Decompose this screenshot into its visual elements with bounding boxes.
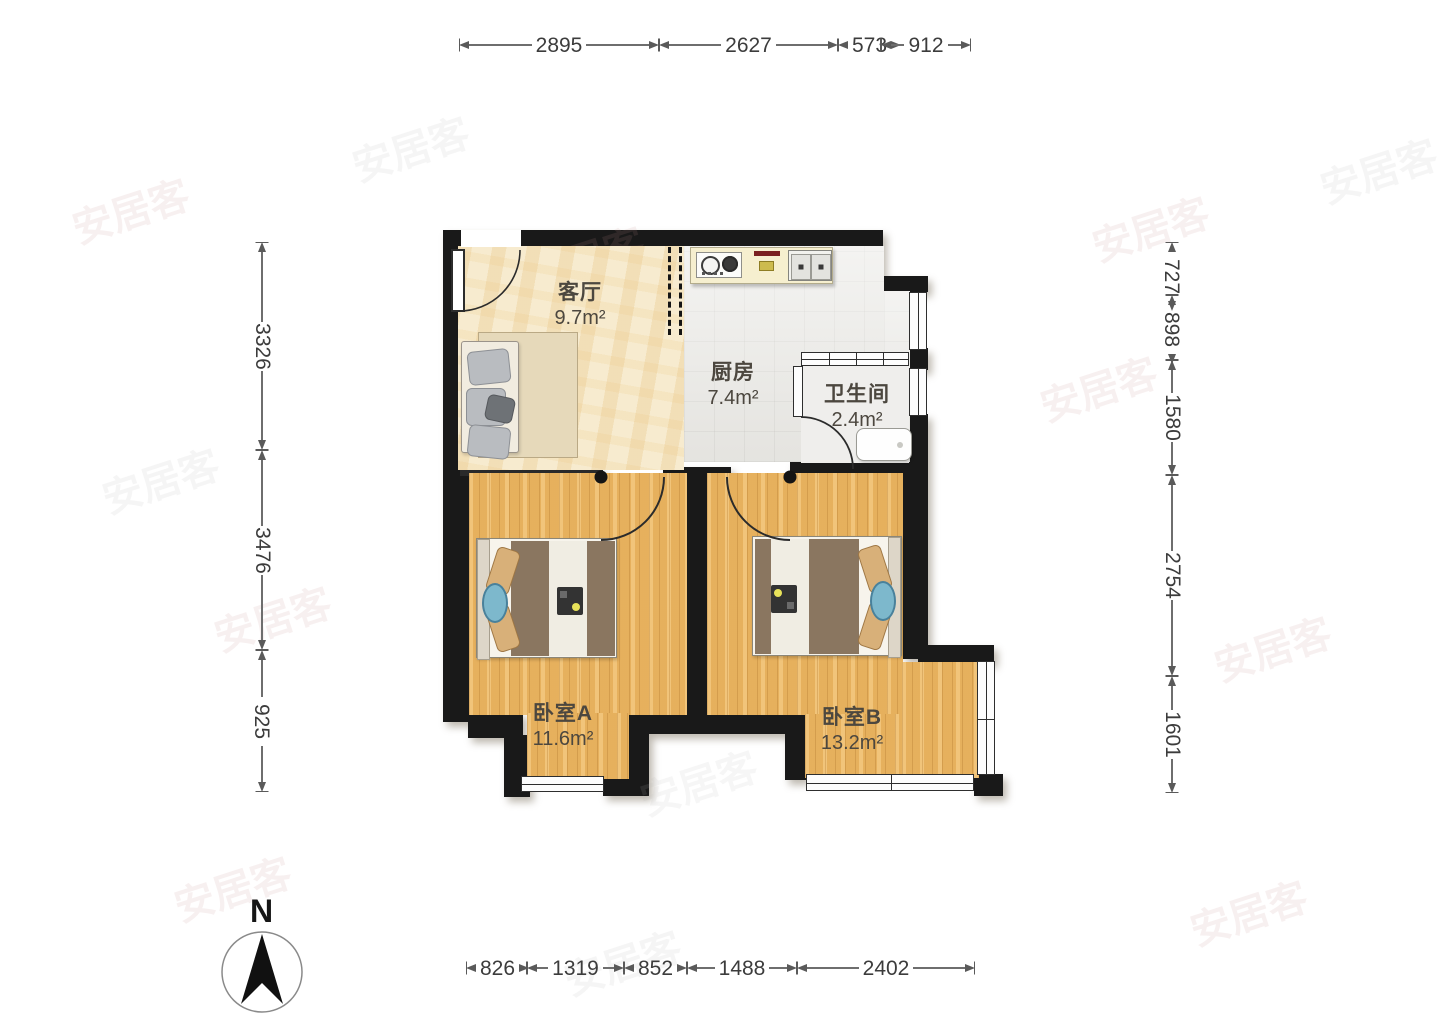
dim-value: 1580 [1162, 394, 1183, 441]
dim-bottom-2: 1319 [527, 955, 624, 981]
compass-circle [222, 932, 302, 1012]
room-label-living: 客厅 9.7m² [554, 276, 605, 330]
stove [696, 252, 742, 278]
bathroom-partition-window [801, 352, 909, 366]
room-area: 9.7m² [554, 307, 605, 330]
window [977, 661, 995, 775]
room-area: 2.4m² [824, 409, 890, 432]
bedroomB-floor-bay [902, 662, 979, 778]
counter-item [754, 251, 780, 256]
dim-value: 1319 [548, 958, 603, 979]
double-sink [788, 250, 832, 281]
watermark-text: 安居客 [1032, 341, 1164, 433]
watermark-text: 安居客 [344, 101, 476, 193]
dim-value: 2754 [1162, 552, 1183, 599]
floorplan-canvas: 客厅 9.7m² 厨房 7.4m² 卫生间 2.4m² 卧室A 11.6m² 卧… [0, 0, 1440, 1024]
room-name: 客厅 [554, 276, 605, 306]
room-name: 卧室A [533, 697, 594, 727]
bedB-tray [771, 585, 797, 613]
dim-value: 3476 [252, 527, 273, 574]
tub-drain [897, 442, 903, 448]
tray-dot [560, 591, 567, 598]
room-name: 卫生间 [824, 378, 890, 408]
window [806, 774, 974, 791]
dim-bottom-1: 826 [466, 955, 527, 981]
bathtub [856, 428, 912, 461]
room-area: 7.4m² [707, 387, 758, 410]
room-area: 11.6m² [533, 728, 594, 751]
tray-dot [787, 602, 794, 609]
room-name: 厨房 [707, 356, 758, 386]
watermark-text: 安居客 [64, 163, 196, 255]
tray-dot [774, 589, 782, 597]
bedB [752, 536, 902, 656]
stove-burner [722, 256, 738, 272]
wall [785, 732, 806, 780]
dim-left-3: 925 [249, 650, 275, 792]
watermark-text: 安居客 [166, 841, 298, 933]
dim-right-3: 1580 [1159, 360, 1185, 475]
dim-bottom-3: 852 [624, 955, 687, 981]
watermark-text: 安居客 [1312, 123, 1440, 215]
compass-needle [241, 934, 283, 1004]
wall [902, 461, 928, 659]
bedA [476, 538, 617, 658]
sofa [461, 341, 519, 453]
window [909, 292, 927, 350]
counter-item [759, 261, 774, 271]
room-area: 13.2m² [821, 732, 883, 755]
room-label-bedroomB: 卧室B 13.2m² [821, 701, 883, 755]
sofa-cushion [466, 348, 511, 386]
wall [908, 348, 928, 370]
stove-knobs [702, 272, 724, 275]
entrance-door-leaf [451, 249, 465, 312]
sink-basin [811, 254, 831, 280]
compass-north-label: N [250, 893, 273, 930]
dim-value: 1488 [715, 958, 770, 979]
dim-value: 3326 [252, 323, 273, 370]
dim-top-2: 2627 [659, 32, 838, 58]
bathroom-door-frame [793, 366, 803, 417]
dim-left-1: 3326 [249, 242, 275, 450]
dim-right-2: 898 [1159, 295, 1185, 360]
wall [686, 482, 708, 734]
tray-dot [572, 603, 580, 611]
dim-top-3: 573 [838, 32, 881, 58]
kitchen-counter [690, 247, 833, 284]
dim-value: 912 [904, 35, 947, 56]
wall [628, 732, 649, 796]
dim-value: 2895 [532, 35, 587, 56]
entry-opening [461, 230, 521, 247]
bedA-tray [557, 587, 583, 615]
dim-top-1: 2895 [459, 32, 659, 58]
room-label-kitchen: 厨房 7.4m² [707, 356, 758, 410]
watermark-text: 安居客 [632, 735, 764, 827]
dim-value: 727 [1162, 259, 1183, 294]
dim-top-4: 912 [881, 32, 971, 58]
dim-right-5: 1601 [1159, 676, 1185, 793]
open-boundary-dashed [668, 247, 682, 335]
room-name: 卧室B [821, 701, 883, 731]
dim-value: 898 [1162, 312, 1183, 347]
window [521, 776, 604, 792]
dim-value: 925 [252, 703, 273, 738]
watermark-text: 安居客 [1084, 181, 1216, 273]
dim-value: 2402 [859, 958, 914, 979]
dim-value: 852 [634, 958, 677, 979]
dim-value: 826 [476, 958, 519, 979]
bedA-decor [482, 583, 508, 623]
room-label-bathroom: 卫生间 2.4m² [824, 378, 890, 432]
room-label-bedroomA: 卧室A 11.6m² [533, 697, 594, 751]
window [909, 368, 927, 416]
wall [443, 470, 471, 722]
watermark-text: 安居客 [1182, 865, 1314, 957]
sofa-cushion [466, 424, 511, 460]
dim-value: 1601 [1162, 711, 1183, 758]
dim-bottom-4: 1488 [687, 955, 797, 981]
wall [628, 714, 806, 734]
sink-basin [791, 254, 811, 280]
bedB-decor [870, 581, 896, 621]
watermark-text: 安居客 [1206, 601, 1338, 693]
dim-right-1: 727 [1159, 242, 1185, 295]
dim-left-2: 3476 [249, 450, 275, 650]
dim-right-4: 2754 [1159, 475, 1185, 676]
sofa-pillow-dark [484, 393, 517, 424]
dim-bottom-5: 2402 [797, 955, 975, 981]
dim-value: 2627 [721, 35, 776, 56]
watermark-text: 安居客 [94, 433, 226, 525]
